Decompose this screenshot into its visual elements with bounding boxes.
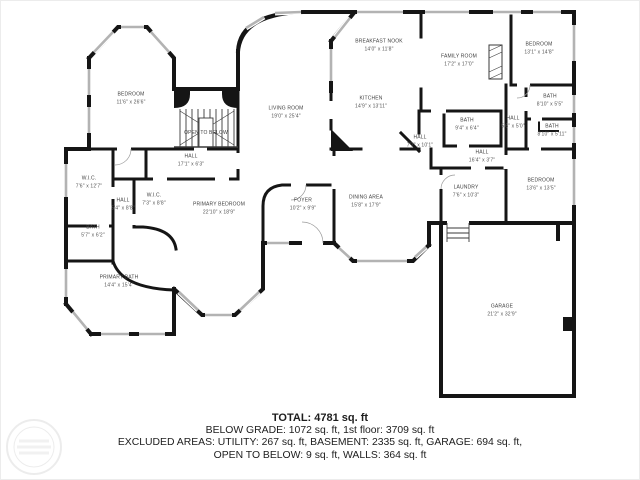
room-label: LAUNDRY7'6" x 10'3": [453, 184, 479, 200]
room-label: BATH8'10" x 5'11": [537, 123, 566, 139]
room-dimensions: 15'8" x 17'9": [349, 202, 383, 210]
room-label: BATH8'10" x 5'5": [537, 93, 563, 109]
room-dimensions: 19'0" x 25'4": [269, 113, 304, 121]
room-label: HALL17'1" x 6'3": [178, 153, 204, 169]
room-label: HALL5'6" x 5'0": [501, 115, 525, 131]
room-label: HALL16'4" x 3'7": [469, 149, 495, 165]
room-dimensions: 14'9" x 13'11": [355, 103, 387, 111]
room-name: HALL: [111, 197, 135, 205]
room-name: BATH: [455, 117, 479, 125]
room-name: BATH: [81, 224, 105, 232]
room-label: DINING AREA15'8" x 17'9": [349, 194, 383, 210]
summary-excluded-line: EXCLUDED AREAS: UTILITY: 267 sq. ft, BAS…: [1, 437, 639, 449]
room-dimensions: 13'6" x 13'5": [526, 185, 555, 193]
room-label: BATH9'4" x 6'4": [455, 117, 479, 133]
room-name: BEDROOM: [116, 91, 145, 99]
room-label: BEDROOM13'1" x 14'8": [524, 41, 553, 57]
room-dimensions: 7'3" x 8'8": [142, 200, 166, 208]
room-name: FOYER: [290, 197, 316, 205]
room-name: OPEN TO BELOW: [184, 130, 228, 138]
room-name: LIVING ROOM: [269, 105, 304, 113]
room-label: KITCHEN14'9" x 13'11": [355, 95, 387, 111]
floor-plan-page: BEDROOM11'6" x 26'6"OPEN TO BELOWLIVING …: [0, 0, 640, 480]
room-label: BREAKFAST NOOK14'0" x 11'8": [355, 38, 403, 54]
area-summary: TOTAL: 4781 sq. ft BELOW GRADE: 1072 sq.…: [1, 412, 639, 462]
room-dimensions: 14'0" x 11'8": [355, 46, 403, 54]
room-dimensions: 11'6" x 26'6": [116, 99, 145, 107]
room-label: OPEN TO BELOW: [184, 130, 228, 138]
room-label: BEDROOM13'6" x 13'5": [526, 177, 555, 193]
room-dimensions: 14'4" x 15'4": [100, 282, 139, 290]
room-name: HALL: [407, 134, 433, 142]
room-dimensions: 5'6" x 5'0": [501, 123, 525, 131]
room-name: W.I.C.: [76, 175, 102, 183]
room-dimensions: 21'2" x 32'9": [487, 311, 516, 319]
room-label: PRIMARY BEDROOM22'10" x 18'9": [193, 201, 245, 217]
room-name: PRIMARY BATH: [100, 274, 139, 282]
room-name: HALL: [178, 153, 204, 161]
room-dimensions: 7'6" x 12'7": [76, 183, 102, 191]
room-dimensions: 8'10" x 5'11": [537, 131, 566, 139]
room-dimensions: 7'7" x 10'1": [407, 142, 433, 150]
room-dimensions: 5'7" x 6'2": [81, 232, 105, 240]
room-name: BREAKFAST NOOK: [355, 38, 403, 46]
room-dimensions: 17'2" x 17'0": [441, 61, 477, 69]
room-name: BEDROOM: [524, 41, 553, 49]
room-dimensions: 9'4" x 6'4": [455, 125, 479, 133]
room-label: BEDROOM11'6" x 26'6": [116, 91, 145, 107]
room-dimensions: 13'1" x 14'8": [524, 49, 553, 57]
room-name: DINING AREA: [349, 194, 383, 202]
room-name: W.I.C.: [142, 192, 166, 200]
summary-grade-line: BELOW GRADE: 1072 sq. ft, 1st floor: 370…: [1, 425, 639, 437]
room-label: HALL5'4" x 8'8": [111, 197, 135, 213]
summary-total: TOTAL: 4781 sq. ft: [1, 412, 639, 424]
room-dimensions: 10'2" x 9'9": [290, 205, 316, 213]
room-dimensions: 7'6" x 10'3": [453, 192, 479, 200]
room-name: FAMILY ROOM: [441, 53, 477, 61]
room-label: GARAGE21'2" x 32'9": [487, 303, 516, 319]
summary-open-walls-line: OPEN TO BELOW: 9 sq. ft, WALLS: 364 sq. …: [1, 450, 639, 462]
room-labels: BEDROOM11'6" x 26'6"OPEN TO BELOWLIVING …: [1, 1, 640, 480]
room-label: FAMILY ROOM17'2" x 17'0": [441, 53, 477, 69]
room-label: PRIMARY BATH14'4" x 15'4": [100, 274, 139, 290]
room-label: HALL7'7" x 10'1": [407, 134, 433, 150]
room-label: W.I.C.7'6" x 12'7": [76, 175, 102, 191]
room-name: PRIMARY BEDROOM: [193, 201, 245, 209]
room-dimensions: 16'4" x 3'7": [469, 157, 495, 165]
room-name: BEDROOM: [526, 177, 555, 185]
room-label: LIVING ROOM19'0" x 25'4": [269, 105, 304, 121]
room-label: W.I.C.7'3" x 8'8": [142, 192, 166, 208]
room-name: GARAGE: [487, 303, 516, 311]
room-name: HALL: [469, 149, 495, 157]
room-dimensions: 22'10" x 18'9": [193, 209, 245, 217]
room-name: BATH: [537, 123, 566, 131]
room-dimensions: 8'10" x 5'5": [537, 101, 563, 109]
room-name: LAUNDRY: [453, 184, 479, 192]
room-name: HALL: [501, 115, 525, 123]
room-name: KITCHEN: [355, 95, 387, 103]
room-dimensions: 5'4" x 8'8": [111, 205, 135, 213]
room-dimensions: 17'1" x 6'3": [178, 161, 204, 169]
room-label: FOYER10'2" x 9'9": [290, 197, 316, 213]
room-name: BATH: [537, 93, 563, 101]
room-label: BATH5'7" x 6'2": [81, 224, 105, 240]
